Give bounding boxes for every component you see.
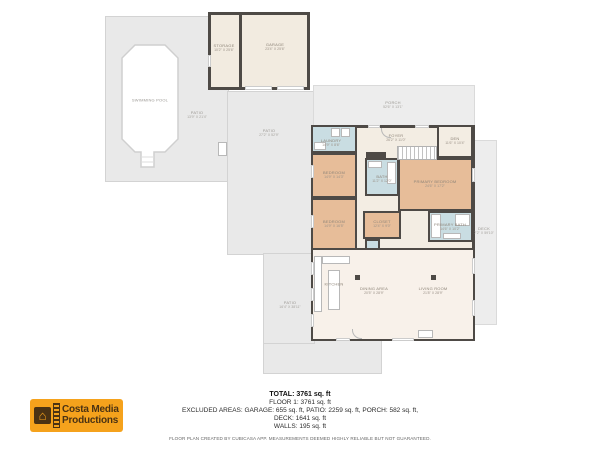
garage-door-1 <box>245 86 272 90</box>
room-name: DECK <box>478 226 490 231</box>
total-area-text: TOTAL: 3761 sq. ft <box>0 391 600 399</box>
closet-wall <box>366 152 386 158</box>
house-icon: ⌂ <box>34 407 51 424</box>
room-label-primary-bath: PRIMARY BATH 14'6" x 10'2" <box>434 222 466 232</box>
window <box>472 258 475 274</box>
logo-line-2: Productions <box>62 416 119 427</box>
kitchen-counter-top <box>322 256 350 264</box>
room-dims: 11'6" x 10'4" <box>445 141 465 146</box>
window <box>311 215 314 228</box>
room-name: PORCH <box>385 100 400 105</box>
room-name: KITCHEN <box>325 281 344 286</box>
room-label-storage: STORAGE 10'2" x 25'6" <box>214 43 235 53</box>
room-label-kitchen: KITCHEN <box>325 281 344 286</box>
room-name: PRIMARY BEDROOM <box>414 179 457 184</box>
swimming-pool <box>119 44 181 170</box>
room-dims: 7'2" x 59'10" <box>474 231 494 236</box>
garage-partition-wall <box>239 12 242 90</box>
window <box>311 165 314 178</box>
room-label-deck: DECK 7'2" x 59'10" <box>474 226 494 236</box>
kitchen-counter <box>314 256 322 312</box>
fireplace-icon <box>431 275 436 280</box>
room-dims: 52'6" x 13'1" <box>383 105 403 110</box>
room-label-laundry: LAUNDRY 14'9" x 8'6" <box>321 138 341 148</box>
room-name: SWIMMING POOL <box>132 97 168 102</box>
room-dims: 21'8" x 28'9" <box>419 291 448 296</box>
logo-text: Costa Media Productions <box>62 405 119 426</box>
room-name: BATH <box>376 174 387 179</box>
room-name: PATIO <box>284 300 296 305</box>
patio-object <box>218 142 227 156</box>
lower-patio-area-bottom <box>263 339 382 374</box>
disclaimer-text: FLOOR PLAN CREATED BY CUBICASA APP. MEAS… <box>0 436 600 441</box>
room-name: PATIO <box>263 128 275 133</box>
room-dims: 27'2" x 52'9" <box>259 133 279 138</box>
room-dims: 23'4" x 25'6" <box>265 47 285 52</box>
toilet-room <box>365 239 380 250</box>
room-name: PATIO <box>191 110 203 115</box>
room-label-patio-mid: PATIO 27'2" x 52'9" <box>259 128 279 138</box>
washer <box>331 128 340 137</box>
room-label-closet: CLOSET 12'4" x 9'0" <box>373 219 391 229</box>
primary-bath-vanity <box>443 233 461 239</box>
garage-door-2 <box>277 86 304 90</box>
room-label-bath-2: BATH 11'2" x 12'0" <box>372 174 392 184</box>
window <box>311 314 314 327</box>
room-name: BEDROOM <box>323 170 345 175</box>
room-dims: 14'9" x 14'3" <box>323 175 345 180</box>
room-name: GARAGE <box>266 42 284 47</box>
room-name: DINING AREA <box>360 286 388 291</box>
room-dims: 24'6" x 17'2" <box>414 184 457 189</box>
room-dims: 14'6" x 10'2" <box>434 227 466 232</box>
room-dims: 11'2" x 12'0" <box>372 179 392 184</box>
room-name: LAUNDRY <box>321 138 341 143</box>
window <box>368 125 380 128</box>
room-dims: 26'2" x 11'0" <box>386 138 406 143</box>
room-label-patio-upper: PATIO 13'9" x 21'4" <box>187 110 207 120</box>
window <box>472 168 475 182</box>
logo-line-1: Costa Media <box>62 405 119 416</box>
room-dims: 14'9" x 8'6" <box>321 143 341 148</box>
dryer <box>341 128 350 137</box>
room-dims: 20'5" x 28'9" <box>360 291 388 296</box>
floor-plan-page: SWIMMING POOL PATIO 13'9" x 21'4" PATIO … <box>0 0 600 450</box>
room-name: BEDROOM <box>323 219 345 224</box>
room-dims: 10'2" x 25'6" <box>214 48 235 53</box>
room-label-primary-bedroom: PRIMARY BEDROOM 24'6" x 17'2" <box>414 179 457 189</box>
storage-door <box>208 55 211 67</box>
room-label-den: DEN 11'6" x 10'4" <box>445 136 465 146</box>
window <box>415 125 429 128</box>
window <box>392 338 414 341</box>
room-label-foyer: FOYER 26'2" x 11'0" <box>386 133 406 143</box>
room-name: FOYER <box>389 133 404 138</box>
room-name: DEN <box>450 136 459 141</box>
room-label-swimming-pool: SWIMMING POOL <box>132 97 168 102</box>
fireplace-icon <box>355 275 360 280</box>
filmstrip-icon <box>53 403 60 428</box>
room-name: LIVING ROOM <box>419 286 448 291</box>
mid-patio-area <box>227 91 315 255</box>
room-label-porch: PORCH 52'6" x 13'1" <box>383 100 403 110</box>
room-label-garage: GARAGE 23'4" x 25'6" <box>265 42 285 52</box>
room-label-patio-lower: PATIO 16'4" x 38'11" <box>279 300 300 310</box>
room-label-living: LIVING ROOM 21'8" x 28'9" <box>419 286 448 296</box>
stairs <box>397 146 437 160</box>
window <box>336 338 350 341</box>
lower-patio-area-left <box>263 253 315 344</box>
room-name: STORAGE <box>214 43 235 48</box>
window <box>472 300 475 316</box>
costa-media-logo: ⌂ Costa Media Productions <box>30 399 123 432</box>
room-dims: 16'4" x 38'11" <box>279 305 300 310</box>
room-label-bedroom-2: BEDROOM 14'9" x 14'3" <box>323 170 345 180</box>
window-seat <box>418 330 433 338</box>
room-dims: 14'9" x 16'5" <box>323 224 345 229</box>
window <box>311 288 314 301</box>
kitchen-island <box>328 270 340 310</box>
room-label-bedroom-3: BEDROOM 14'9" x 16'5" <box>323 219 345 229</box>
room-name: PRIMARY BATH <box>434 222 466 227</box>
room-name: CLOSET <box>373 219 390 224</box>
window <box>311 262 314 275</box>
room-dims: 12'4" x 9'0" <box>373 224 391 229</box>
room-label-dining: DINING AREA 20'5" x 28'9" <box>360 286 388 296</box>
bath2-vanity <box>368 161 382 168</box>
room-dims: 13'9" x 21'4" <box>187 115 207 120</box>
